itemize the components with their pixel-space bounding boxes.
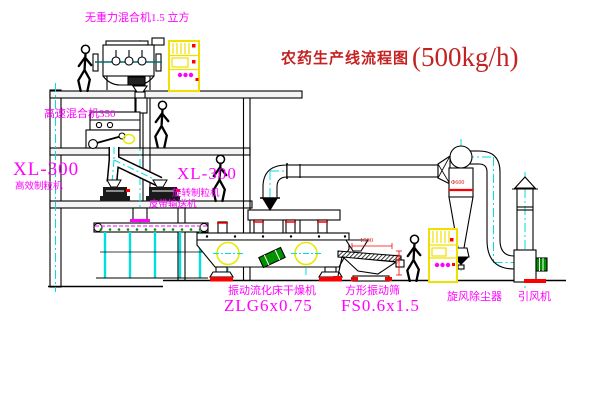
induced-draft-fan <box>514 250 547 283</box>
label-granulator-center-model: XL-300 <box>177 165 237 182</box>
spring-feet <box>210 267 342 282</box>
control-cabinet-roof <box>169 41 199 91</box>
fan-suction-duct <box>470 151 515 269</box>
label-cyclone: 旋风除尘器 <box>447 292 502 303</box>
dim-sieve-width: 1500 <box>360 238 373 245</box>
title-capacity: (500kg/h) <box>412 42 518 73</box>
exhaust-duct <box>260 156 450 198</box>
dryer-hood <box>248 210 340 220</box>
indicator-light <box>450 238 454 242</box>
indicator-light <box>192 44 196 48</box>
person-roof <box>78 45 91 91</box>
conveyor-legs <box>105 232 200 278</box>
label-fan: 引风机 <box>518 292 551 303</box>
belt-conveyor <box>94 223 208 278</box>
exhaust-funnel <box>262 198 278 211</box>
high-speed-mixer <box>86 98 147 148</box>
control-cabinet-ground <box>429 229 457 282</box>
granulator-left <box>100 180 130 202</box>
control-buttons <box>178 73 193 77</box>
label-granulator-left-model: XL-300 <box>13 160 79 179</box>
feed-chute <box>130 208 150 222</box>
indicator-light <box>192 60 196 64</box>
stack-cap <box>515 177 535 188</box>
pesticide-line-flow-diagram: 农药生产线流程图 (500kg/h) 无重力混合机1.5 立方 高速混合机350… <box>0 0 600 403</box>
indicator-light <box>196 78 199 81</box>
person-ground <box>407 235 420 281</box>
label-dryer-model: ZLG6x0.75 <box>224 297 313 314</box>
fan-base <box>524 279 546 283</box>
label-belt-conveyor: 皮带输送机 <box>149 201 197 211</box>
label-gravity-mixer: 无重力混合机1.5 立方 <box>85 13 190 24</box>
fan-motor <box>536 258 547 271</box>
label-high-speed-mixer: 高速混合机350 <box>44 109 116 120</box>
gravity-mixer <box>93 38 164 112</box>
label-granulator-center-name: 旋转制粒机 <box>172 190 220 200</box>
fan-housing <box>514 250 536 282</box>
control-buttons <box>435 263 450 267</box>
dim-sieve-height: 545 <box>393 254 400 264</box>
person-second-floor <box>155 101 168 147</box>
title-text: 农药生产线流程图 <box>281 47 409 68</box>
diagram-title: 农药生产线流程图 (500kg/h) <box>281 42 519 73</box>
cyclone-outlet-elbow <box>450 146 472 168</box>
feed-pipe <box>136 98 147 113</box>
label-granulator-left-name: 高效制粒机 <box>15 183 63 193</box>
indicator-light <box>452 263 455 266</box>
dim-cyclone-dia: Φ600 <box>451 180 464 186</box>
label-sieve-model: FS0.6x1.5 <box>341 297 420 314</box>
inlet-diffuser <box>438 156 450 184</box>
fluid-bed-dryer <box>197 198 349 282</box>
